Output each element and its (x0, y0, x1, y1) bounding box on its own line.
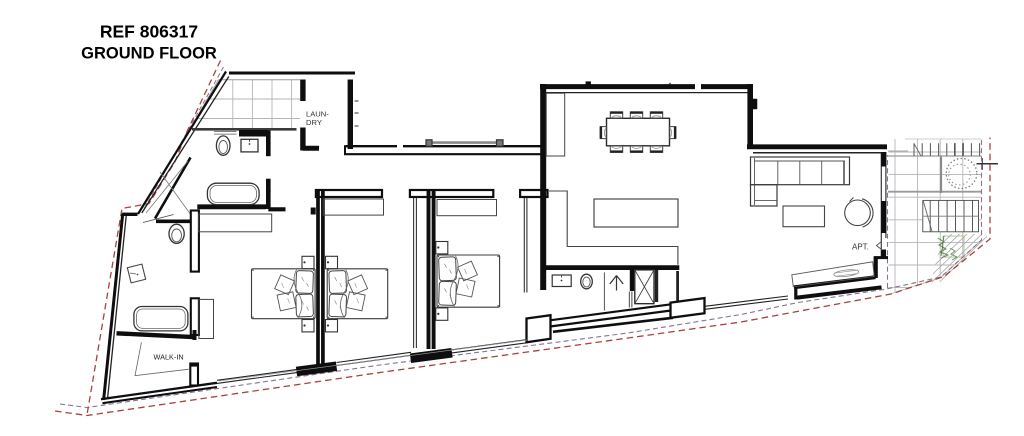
svg-text:GROUND FLOOR: GROUND FLOOR (81, 45, 217, 63)
svg-text:WALK-IN: WALK-IN (154, 352, 184, 361)
svg-text:DRY: DRY (306, 118, 322, 127)
svg-text:APT.: APT. (852, 242, 869, 251)
svg-text:REF 806317: REF 806317 (100, 22, 198, 42)
